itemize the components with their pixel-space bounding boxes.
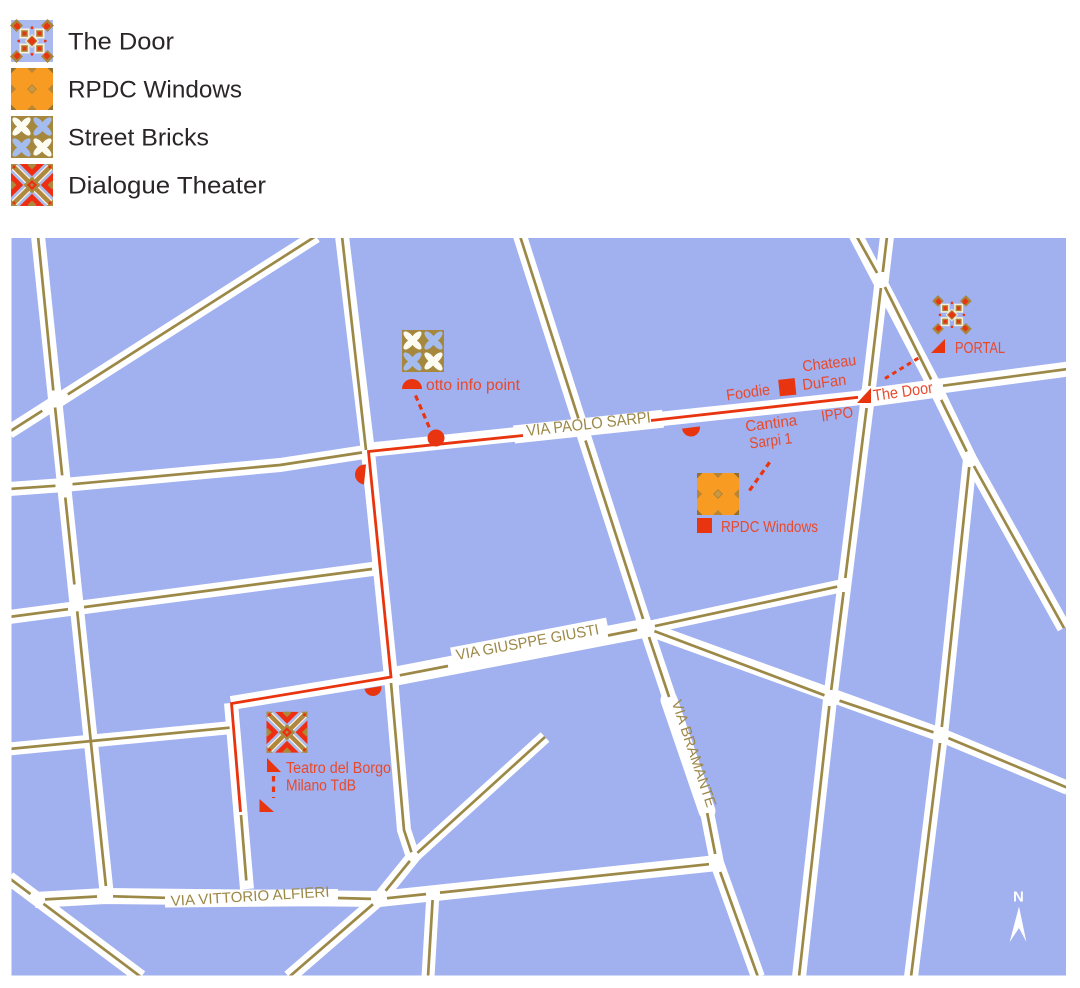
svg-text:PORTAL: PORTAL: [955, 340, 1005, 357]
svg-text:N: N: [1013, 889, 1024, 906]
svg-text:Teatro del Borgo: Teatro del Borgo: [286, 760, 391, 777]
svg-text:Milano TdB: Milano TdB: [286, 778, 356, 795]
svg-text:RPDC Windows: RPDC Windows: [68, 77, 242, 104]
svg-text:The Door: The Door: [68, 29, 174, 56]
svg-text:RPDC Windows: RPDC Windows: [721, 519, 818, 536]
svg-text:Street Bricks: Street Bricks: [68, 125, 209, 152]
svg-text:Dialogue Theater: Dialogue Theater: [68, 173, 266, 200]
svg-text:otto info point: otto info point: [426, 377, 521, 394]
